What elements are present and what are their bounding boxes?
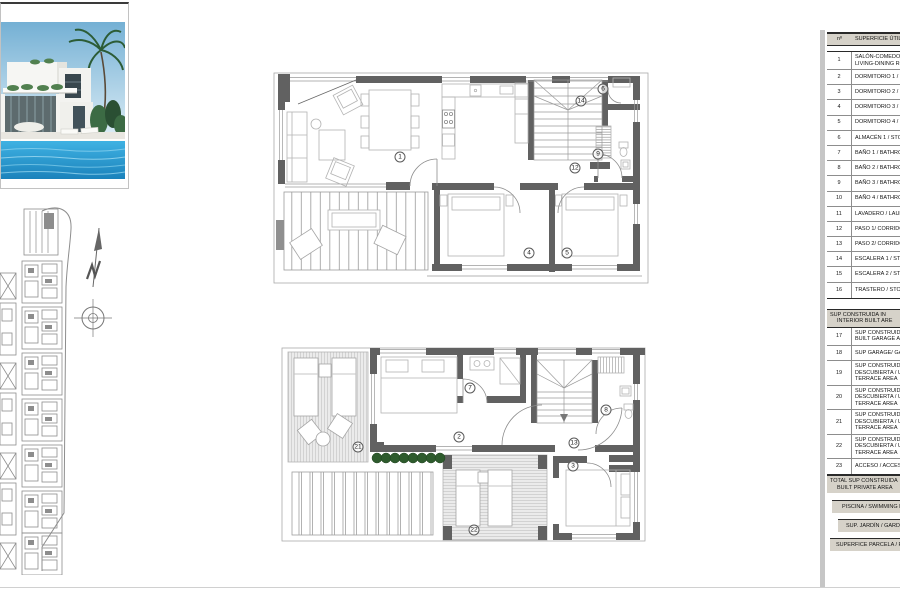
table-row: 10 BAÑO 4 / BATHRO bbox=[827, 192, 900, 207]
row-label: BAÑO 3 / BATHRO bbox=[852, 176, 900, 190]
table-row: 20 SUP CONSTRUIDADESCUBIERTA / UTERRACE … bbox=[827, 386, 900, 411]
table-row: 4 DORMITORIO 3 / B bbox=[827, 100, 900, 115]
plot-boundary bbox=[42, 208, 71, 571]
table-row: 23 ACCESO / ACCESS bbox=[827, 459, 900, 474]
row-number: 5 bbox=[827, 116, 852, 130]
swimming-pool bbox=[1, 141, 125, 179]
header-label-col: SUPERFICIE ÚTIL / USEFUL bbox=[852, 36, 900, 43]
row-number: 13 bbox=[827, 237, 852, 251]
row-label: SUP GARAGE/ GAR bbox=[852, 346, 900, 360]
row-number: 22 bbox=[827, 435, 852, 459]
villa-photo bbox=[1, 22, 125, 179]
ground-terrace-21 bbox=[288, 352, 368, 462]
kitchen bbox=[442, 83, 528, 159]
footer-divider bbox=[0, 587, 900, 588]
table-row: 3 DORMITORIO 2 / B bbox=[827, 85, 900, 100]
row-label: SUP CONSTRUIDADESCUBIERTA / UTERRACE ARE… bbox=[852, 361, 900, 385]
row-number: 21 bbox=[827, 410, 852, 434]
pergola bbox=[292, 472, 433, 535]
table-row: 21 SUP CONSTRUIDADESCUBIERTA / UTERRACE … bbox=[827, 410, 900, 435]
table-row: 11 LAVADERO / LAUN bbox=[827, 207, 900, 222]
plot-band: SUPERFICE PARCELA / PLOT bbox=[830, 538, 900, 551]
useful-area-rows: 1 SALÓN-COMEDOR /LIVING-DINING RO 2 DORM… bbox=[827, 51, 900, 299]
row-number: 10 bbox=[827, 192, 852, 206]
row-number: 18 bbox=[827, 346, 852, 360]
bath-fixtures bbox=[596, 78, 630, 169]
row-label: DORMITORIO 4 / B bbox=[852, 116, 900, 130]
header-number-col: nº bbox=[827, 36, 852, 43]
row-label: DORMITORIO 2 / B bbox=[852, 85, 900, 99]
row-label: BAÑO 2 / BATHRO bbox=[852, 161, 900, 175]
garden-band: SUP. JARDÍN / GARDEN AREA bbox=[838, 519, 900, 532]
staircase bbox=[537, 360, 592, 423]
bedroom2-furniture bbox=[381, 357, 520, 413]
pool-band: PISCINA / SWIMMING POOL bbox=[832, 500, 900, 513]
table-row: 2 DORMITORIO 1 / B bbox=[827, 70, 900, 85]
row-label: ACCESO / ACCESS bbox=[852, 459, 900, 474]
row-number: 6 bbox=[827, 131, 852, 145]
row-label: DORMITORIO 3 / B bbox=[852, 100, 900, 114]
table-row: 8 BAÑO 2 / BATHRO bbox=[827, 161, 900, 176]
compass-icon bbox=[74, 299, 112, 337]
beds bbox=[440, 194, 627, 256]
row-label: ESCALERA 2 / STAI bbox=[852, 267, 900, 281]
row-label: SUP CONSTRUIDADESCUBIERTA / UTERRACE ARE… bbox=[852, 410, 900, 434]
row-label: PASO 2/ CORRIDO bbox=[852, 237, 900, 251]
bedroom3-furniture bbox=[566, 470, 630, 526]
row-label: SUP CONSTRUIDABUILT GARAGE AR bbox=[852, 328, 900, 345]
table-row: 13 PASO 2/ CORRIDO bbox=[827, 237, 900, 252]
row-number: 11 bbox=[827, 207, 852, 221]
row-number: 7 bbox=[827, 146, 852, 160]
row-number: 19 bbox=[827, 361, 852, 385]
row-label: TRASTERO / STOR bbox=[852, 283, 900, 298]
total-built-band: TOTAL SUP CONSTRUIDABUILT PRIVATE AREA bbox=[827, 475, 900, 493]
plan-sheet: { "colors": { "wall_gray": "#616161", "f… bbox=[0, 0, 900, 600]
table-row: 12 PASO 1/ CORRIDO bbox=[827, 222, 900, 237]
row-label: BAÑO 1 / BATHRO bbox=[852, 146, 900, 160]
floor-plan-ground bbox=[276, 344, 648, 544]
table-row: 7 BAÑO 1 / BATHRO bbox=[827, 146, 900, 161]
row-label: ALMACÉN 1 / STOR bbox=[852, 131, 900, 145]
row-number: 2 bbox=[827, 70, 852, 84]
row-number: 17 bbox=[827, 328, 852, 345]
row-number: 16 bbox=[827, 283, 852, 298]
row-number: 15 bbox=[827, 267, 852, 281]
row-number: 3 bbox=[827, 85, 852, 99]
ground-terrace-22 bbox=[443, 455, 547, 540]
table-row: 17 SUP CONSTRUIDABUILT GARAGE AR bbox=[827, 328, 900, 346]
table-row: 6 ALMACÉN 1 / STOR bbox=[827, 131, 900, 146]
row-label: BAÑO 4 / BATHRO bbox=[852, 192, 900, 206]
upper-terrace bbox=[284, 192, 428, 270]
table-row: 14 ESCALERA 1 / STAI bbox=[827, 252, 900, 267]
row-number: 4 bbox=[827, 100, 852, 114]
table-row: 9 BAÑO 3 / BATHRO bbox=[827, 176, 900, 191]
table-header: nº SUPERFICIE ÚTIL / USEFUL bbox=[827, 32, 900, 46]
row-label: PASO 1/ CORRIDO bbox=[852, 222, 900, 236]
site-plan bbox=[0, 203, 130, 575]
row-number: 1 bbox=[827, 52, 852, 69]
table-row: 5 DORMITORIO 4 / B bbox=[827, 116, 900, 131]
row-label: LAVADERO / LAUN bbox=[852, 207, 900, 221]
table-row: 18 SUP GARAGE/ GAR bbox=[827, 346, 900, 361]
staircase bbox=[534, 80, 602, 160]
table-row: 15 ESCALERA 2 / STAI bbox=[827, 267, 900, 282]
north-arrow-icon bbox=[87, 228, 102, 287]
row-label: SUP CONSTRUIDADESCUBIERTA / UTERRACE ARE… bbox=[852, 386, 900, 410]
hedge-bushes bbox=[372, 453, 445, 463]
row-number: 12 bbox=[827, 222, 852, 236]
row-number: 23 bbox=[827, 459, 852, 474]
unit-blocks bbox=[0, 209, 62, 575]
row-number: 8 bbox=[827, 161, 852, 175]
sheet-edge-divider bbox=[820, 30, 825, 588]
table-row: 16 TRASTERO / STOR bbox=[827, 283, 900, 298]
row-number: 20 bbox=[827, 386, 852, 410]
row-number: 9 bbox=[827, 176, 852, 190]
table-row: 22 SUP CONSTRUIDADESCUBIERTA / UTERRACE … bbox=[827, 435, 900, 460]
built-area-rows: 17 SUP CONSTRUIDABUILT GARAGE AR 18 SUP … bbox=[827, 327, 900, 475]
bath8-fixtures bbox=[598, 357, 633, 419]
surface-area-table: nº SUPERFICIE ÚTIL / USEFUL 1 SALÓN-COME… bbox=[827, 32, 900, 551]
row-label: SALÓN-COMEDOR /LIVING-DINING RO bbox=[852, 52, 900, 69]
floor-plan-upper bbox=[272, 64, 652, 292]
row-number: 14 bbox=[827, 252, 852, 266]
table-row: 19 SUP CONSTRUIDADESCUBIERTA / UTERRACE … bbox=[827, 361, 900, 386]
table-row: 1 SALÓN-COMEDOR /LIVING-DINING RO bbox=[827, 52, 900, 70]
row-label: ESCALERA 1 / STAI bbox=[852, 252, 900, 266]
row-label: SUP CONSTRUIDADESCUBIERTA / UTERRACE ARE… bbox=[852, 435, 900, 459]
villa-photo-card bbox=[0, 2, 129, 189]
built-area-section-header: SUP CONSTRUIDA ININTERIOR BUILT ARE bbox=[827, 309, 900, 327]
row-label: DORMITORIO 1 / B bbox=[852, 70, 900, 84]
dining-table bbox=[369, 90, 411, 150]
